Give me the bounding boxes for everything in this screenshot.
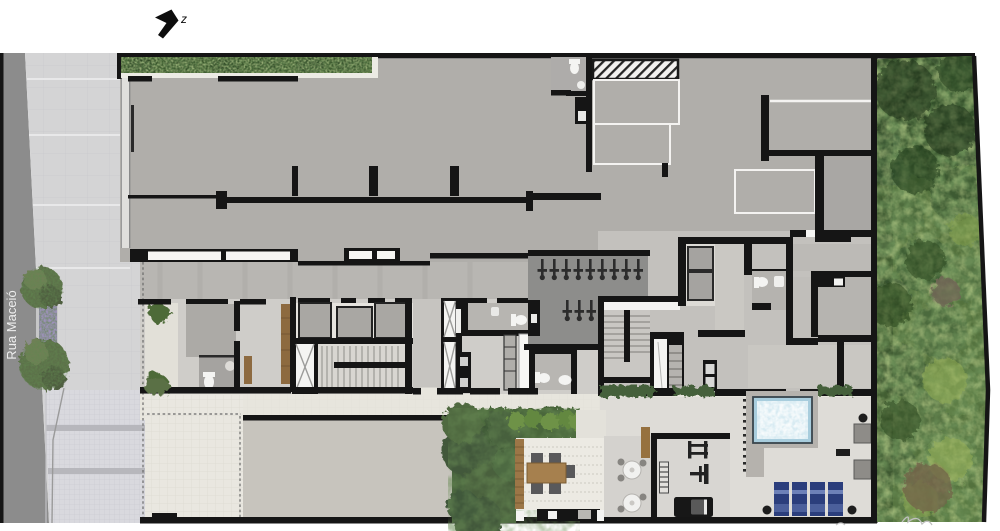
- svg-text:Rua Maceió: Rua Maceió: [4, 290, 19, 359]
- svg-text:z: z: [180, 12, 187, 26]
